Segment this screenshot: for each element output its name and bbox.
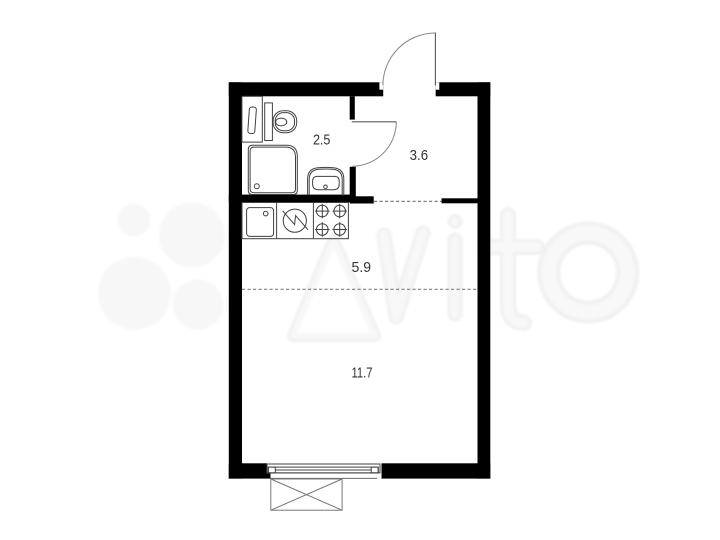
svg-text:11.7: 11.7	[352, 366, 373, 382]
svg-text:3.6: 3.6	[410, 148, 429, 164]
svg-text:5.9: 5.9	[352, 260, 372, 276]
svg-text:2.5: 2.5	[313, 133, 331, 149]
